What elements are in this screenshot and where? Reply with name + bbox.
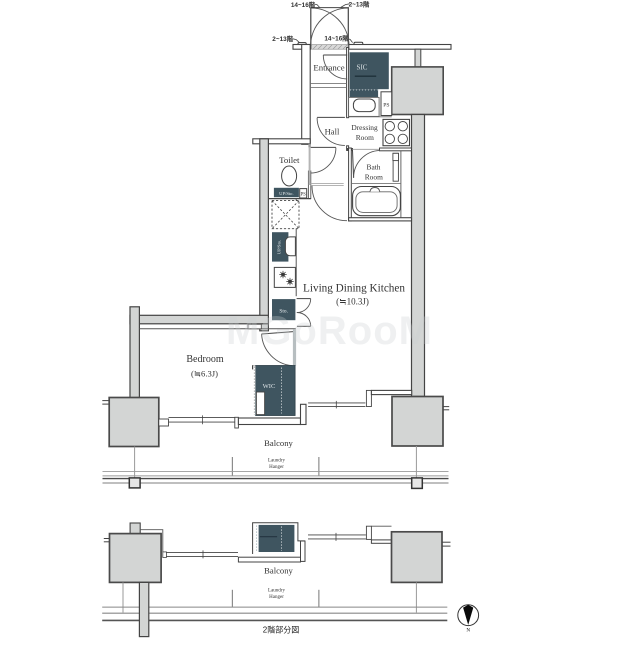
svg-text:(≒6.3J): (≒6.3J) [191,369,218,379]
svg-text:2~13階: 2~13階 [272,34,293,43]
svg-text:UP/Sto.: UP/Sto. [277,240,282,254]
svg-text:Hall: Hall [325,127,340,137]
svg-text:2~13階: 2~13階 [349,0,370,9]
svg-text:UP/Sto.: UP/Sto. [279,191,293,196]
svg-text:WIC: WIC [263,383,276,390]
svg-text:14~16階: 14~16階 [291,0,316,9]
svg-text:Laundry: Laundry [268,459,285,464]
svg-text:Dressing: Dressing [351,123,378,132]
svg-text:Balcony: Balcony [264,438,293,448]
svg-text:PS: PS [383,103,389,109]
svg-text:Balcony: Balcony [264,566,293,576]
svg-text:Bedroom: Bedroom [186,354,223,365]
svg-text:Living Dining Kitchen: Living Dining Kitchen [303,283,405,295]
svg-text:MGoRooM: MGoRooM [226,309,433,353]
svg-text:SIC: SIC [357,64,368,72]
svg-text:N: N [466,628,470,634]
svg-text:2階部分図: 2階部分図 [263,625,299,635]
svg-text:Laundry: Laundry [268,589,285,594]
svg-text:Toilet: Toilet [279,155,300,165]
svg-text:Room: Room [365,172,383,181]
svg-text:PS: PS [301,193,307,198]
svg-text:Room: Room [356,133,374,142]
svg-text:Hanger: Hanger [269,595,284,600]
svg-text:Bath: Bath [367,163,381,172]
svg-text:Hanger: Hanger [269,465,284,470]
svg-text:(≒10.3J): (≒10.3J) [336,297,369,307]
svg-text:14~16階: 14~16階 [324,34,349,43]
